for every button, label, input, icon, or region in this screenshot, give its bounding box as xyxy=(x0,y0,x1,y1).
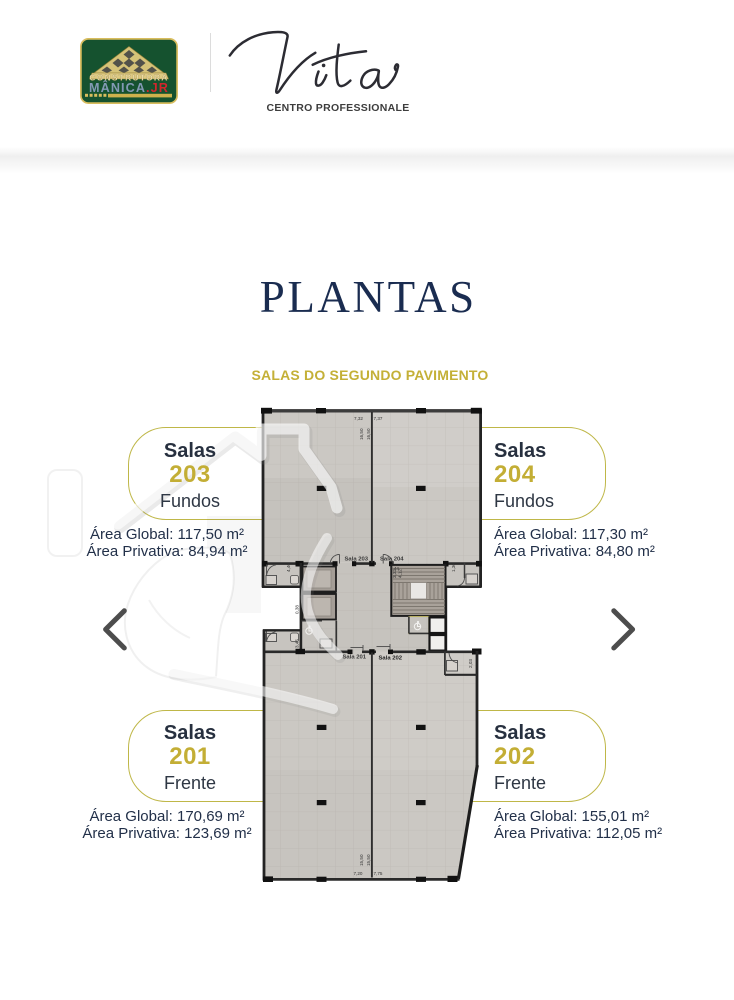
svg-text:7,20: 7,20 xyxy=(354,871,363,876)
svg-text:2,03: 2,03 xyxy=(468,659,473,668)
svg-text:0,38: 0,38 xyxy=(295,605,300,614)
svg-text:15,50: 15,50 xyxy=(366,854,371,866)
svg-text:1,30: 1,30 xyxy=(451,563,456,572)
svg-text:Sala 201: Sala 201 xyxy=(343,655,367,661)
svg-text:Sala 204: Sala 204 xyxy=(380,556,404,562)
svg-text:7,32: 7,32 xyxy=(354,416,363,421)
svg-text:4,40: 4,40 xyxy=(286,563,291,572)
svg-text:7,75: 7,75 xyxy=(374,871,383,876)
svg-text:16,50: 16,50 xyxy=(359,428,364,440)
svg-text:3,44: 3,44 xyxy=(390,566,399,571)
svg-text:Sala 203: Sala 203 xyxy=(345,556,369,562)
svg-text:7,37: 7,37 xyxy=(374,416,383,421)
svg-text:Sala 202: Sala 202 xyxy=(379,656,403,662)
svg-text:16,50: 16,50 xyxy=(366,428,371,440)
svg-text:15,50: 15,50 xyxy=(359,854,364,866)
svg-text:3,45: 3,45 xyxy=(295,639,300,648)
